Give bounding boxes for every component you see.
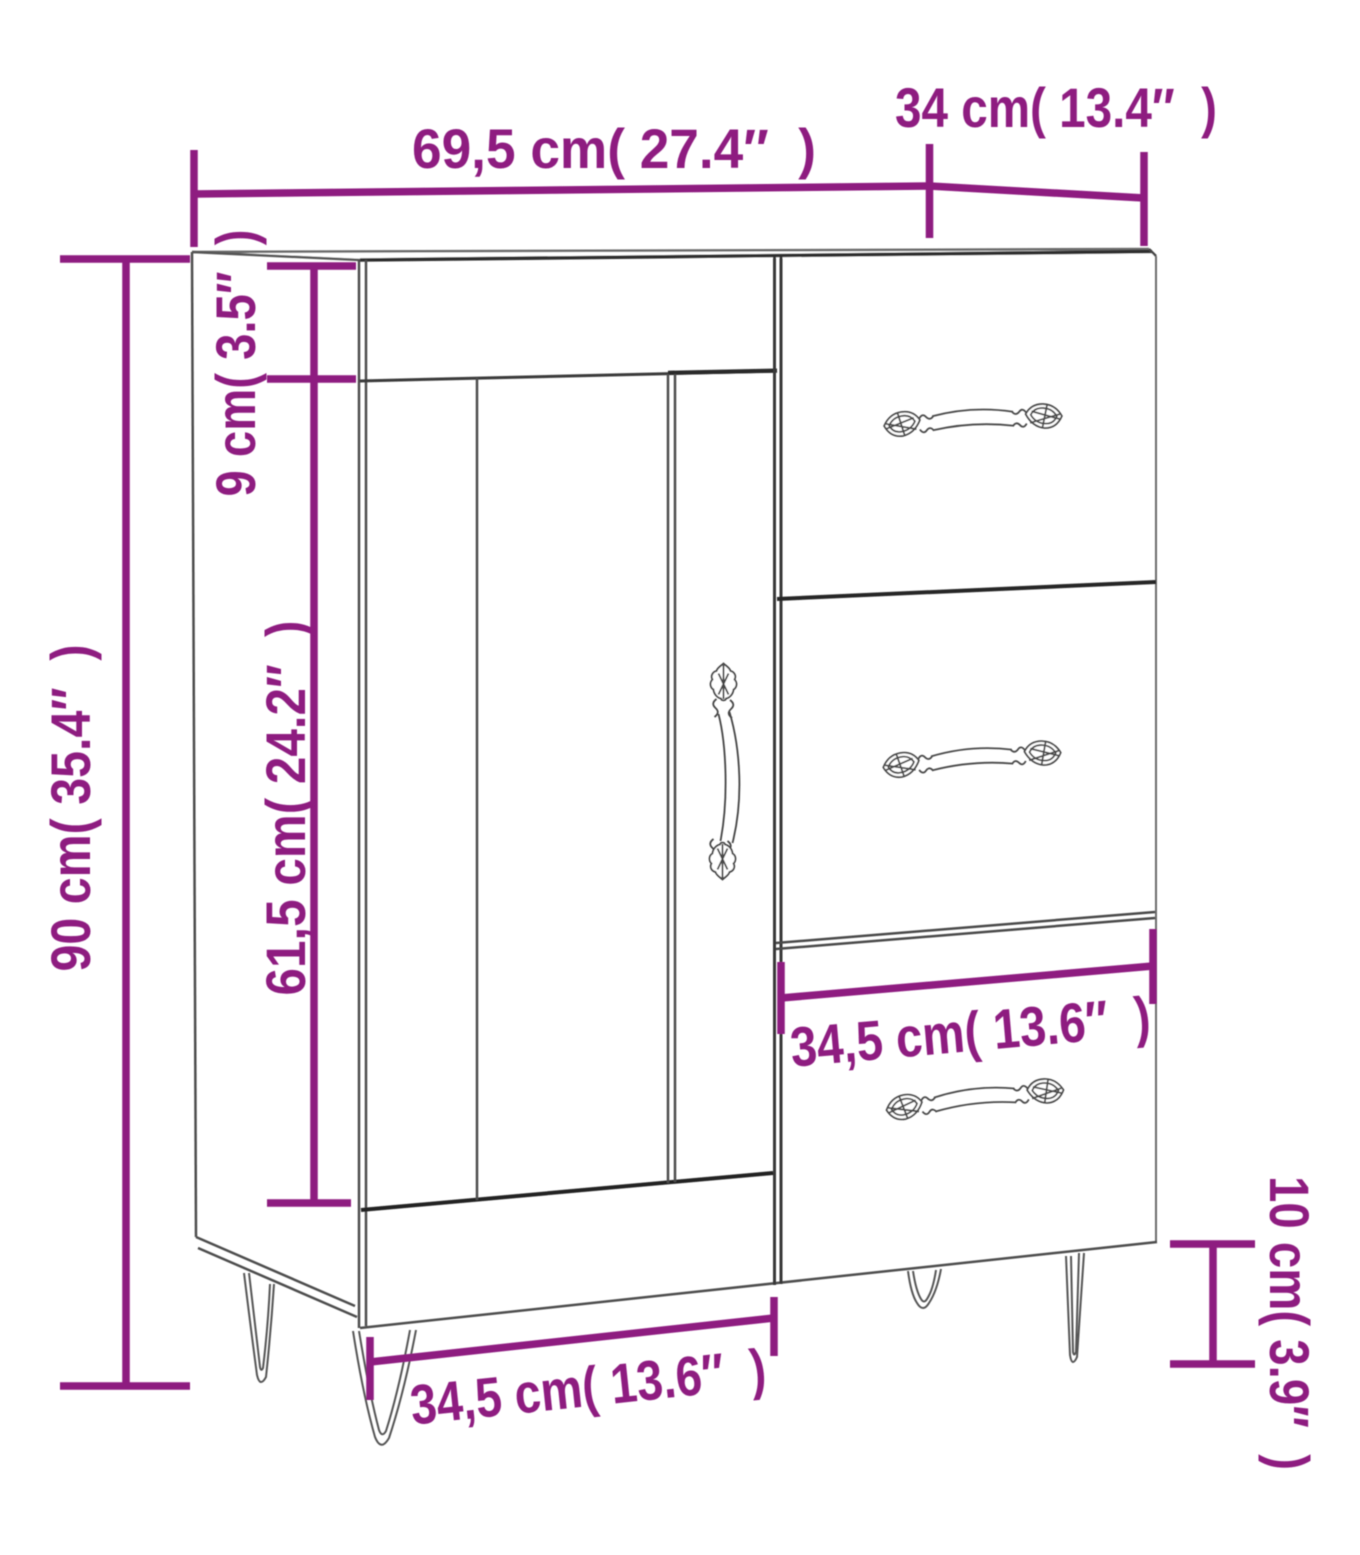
svg-text:90 cm( 35.4″ ): 90 cm( 35.4″ ) (39, 645, 102, 972)
svg-text:34 cm( 13.4″ ): 34 cm( 13.4″ ) (895, 76, 1217, 139)
svg-text:69,5 cm( 27.4″ ): 69,5 cm( 27.4″ ) (412, 117, 816, 180)
svg-text:61,5 cm( 24.2″ ): 61,5 cm( 24.2″ ) (254, 621, 317, 996)
svg-text:9 cm( 3.5″ ): 9 cm( 3.5″ ) (204, 230, 267, 497)
svg-text:10 cm( 3.9″ ): 10 cm( 3.9″ ) (1258, 1176, 1321, 1470)
